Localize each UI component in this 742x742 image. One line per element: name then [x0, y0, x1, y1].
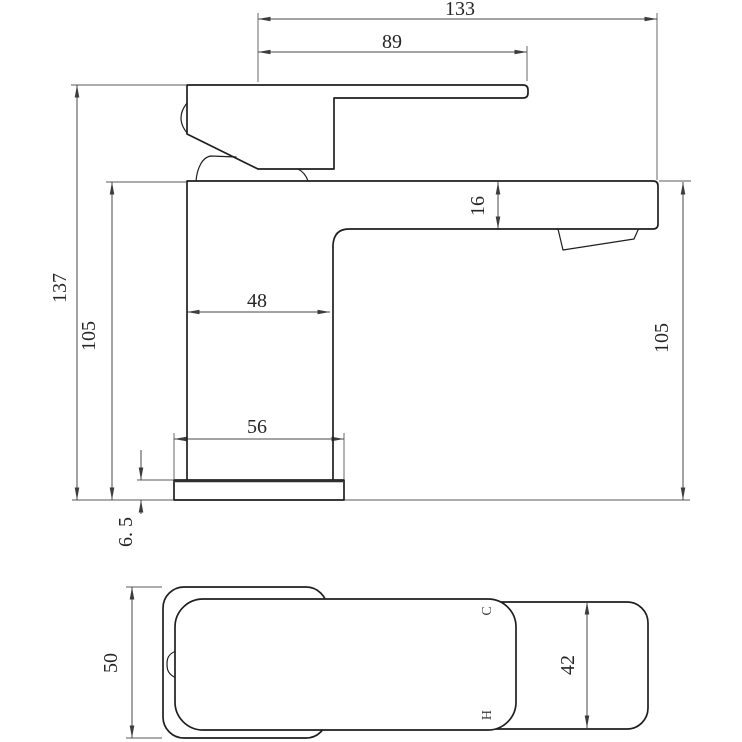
dim-label-56: 56: [247, 416, 267, 438]
dim-label-133: 133: [445, 0, 475, 20]
base-plate: [174, 480, 344, 500]
plan-view: C H 50 42: [100, 587, 648, 738]
side-elevation-view: 133 89 137 105 105 16 48 56: [49, 0, 691, 547]
dim-overall-length: 133: [258, 0, 657, 20]
dim-base-width: 56: [174, 416, 344, 439]
dim-base-thickness: 6. 5: [115, 450, 141, 547]
handle-lever-outline: [187, 85, 528, 169]
dim-overall-height: 137: [49, 85, 77, 500]
cartridge-dome-right: [298, 169, 308, 181]
dim-label-105-right: 105: [651, 323, 673, 353]
dim-label-6-5: 6. 5: [115, 517, 137, 547]
dim-spout-thickness: 16: [467, 182, 498, 229]
dim-label-42: 42: [557, 655, 579, 675]
drawing-sheet: 133 89 137 105 105 16 48 56: [0, 0, 742, 742]
aerator-nozzle: [558, 229, 638, 250]
dim-label-137: 137: [49, 273, 71, 303]
faucet-dimension-drawing: 133 89 137 105 105 16 48 56: [0, 0, 742, 742]
cold-marker-label: C: [480, 606, 495, 615]
dim-height-left: 105: [78, 182, 112, 500]
dim-label-48: 48: [247, 290, 267, 312]
dim-label-89: 89: [382, 31, 402, 53]
cartridge-dome-left: [196, 156, 236, 181]
hot-marker-label: H: [480, 710, 495, 720]
handle-edge-bulge: [181, 103, 187, 133]
dim-height-right: 105: [651, 182, 683, 500]
dim-body-width: 48: [187, 290, 330, 312]
dim-label-50: 50: [100, 653, 122, 673]
plan-handle-plate-outline: [175, 599, 516, 730]
dim-handle-reach: 89: [258, 31, 527, 53]
dim-body-depth: 50: [100, 587, 132, 738]
dim-label-105-left: 105: [78, 321, 100, 351]
dim-label-16: 16: [467, 196, 489, 216]
